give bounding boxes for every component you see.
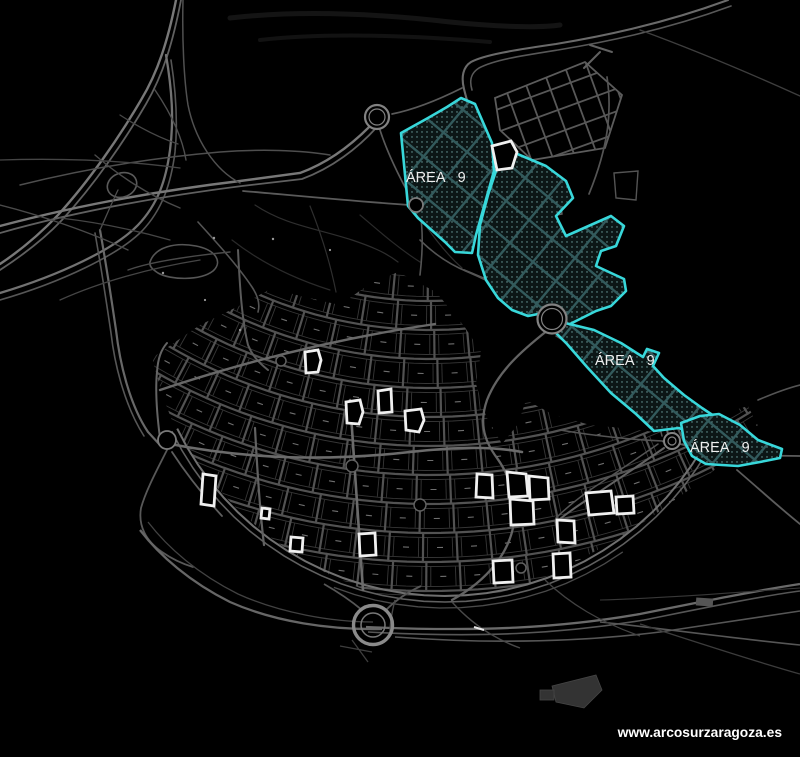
svg-text:ÁREA 9: ÁREA 9 (690, 439, 750, 456)
svg-text:ÁREA 9: ÁREA 9 (595, 352, 655, 369)
svg-text:www.arcosurzaragoza.es: www.arcosurzaragoza.es (617, 725, 783, 740)
svg-text:ÁREA 9: ÁREA 9 (406, 169, 466, 186)
